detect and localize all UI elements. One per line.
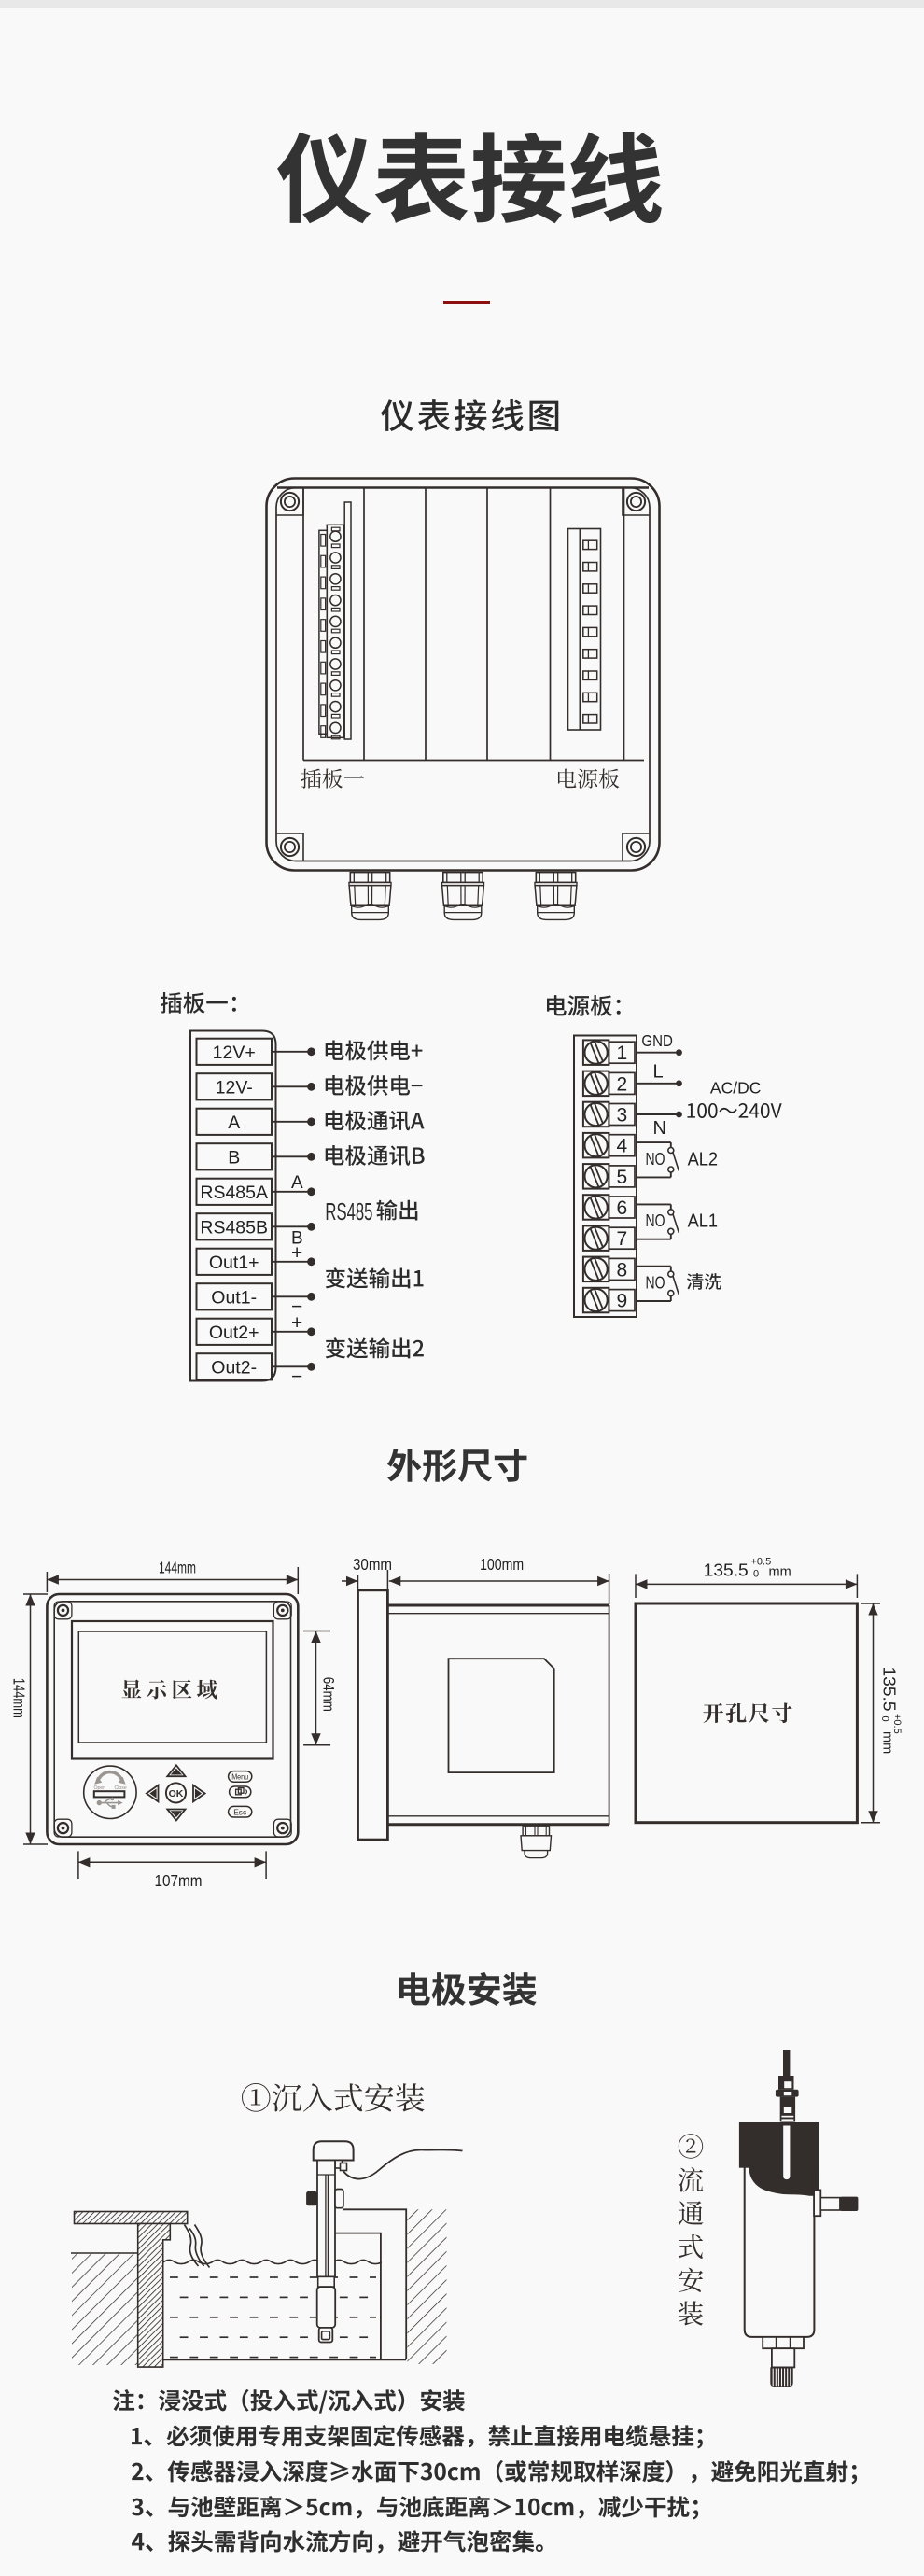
svg-text:+: + bbox=[291, 1242, 302, 1264]
svg-text:A: A bbox=[291, 1173, 303, 1193]
svg-text:Out1+: Out1+ bbox=[209, 1253, 259, 1273]
svg-text:0: 0 bbox=[753, 1569, 759, 1580]
svg-text:5: 5 bbox=[616, 1167, 627, 1188]
svg-text:12V+: 12V+ bbox=[213, 1043, 256, 1063]
svg-text:4: 4 bbox=[616, 1136, 627, 1157]
svg-text:1: 1 bbox=[616, 1043, 627, 1064]
svg-text:135.5: 135.5 bbox=[880, 1667, 899, 1712]
svg-text:+: + bbox=[291, 1312, 302, 1334]
svg-text:AL1: AL1 bbox=[688, 1211, 719, 1232]
svg-text:Out2+: Out2+ bbox=[209, 1323, 259, 1343]
svg-text:RS485: RS485 bbox=[325, 1197, 372, 1225]
svg-text:7: 7 bbox=[616, 1228, 627, 1250]
svg-text:135.5: 135.5 bbox=[704, 1561, 749, 1579]
svg-text:2: 2 bbox=[616, 1073, 627, 1095]
svg-text:6: 6 bbox=[616, 1197, 627, 1219]
svg-text:mm: mm bbox=[769, 1564, 791, 1579]
svg-text:144mm: 144mm bbox=[10, 1678, 29, 1718]
svg-text:L: L bbox=[653, 1061, 664, 1082]
svg-text:8: 8 bbox=[616, 1259, 627, 1281]
svg-text:AC/DC: AC/DC bbox=[710, 1079, 761, 1098]
svg-text:107mm: 107mm bbox=[155, 1871, 203, 1890]
svg-text:NO: NO bbox=[646, 1149, 665, 1169]
svg-text:RS485A: RS485A bbox=[200, 1183, 268, 1203]
svg-text:N: N bbox=[653, 1118, 666, 1139]
svg-text:B: B bbox=[228, 1147, 240, 1168]
svg-text:mm: mm bbox=[880, 1731, 895, 1754]
svg-text:NO: NO bbox=[646, 1211, 665, 1230]
svg-text:Out1-: Out1- bbox=[211, 1287, 257, 1308]
svg-text:12V-: 12V- bbox=[216, 1077, 253, 1098]
svg-text:AL2: AL2 bbox=[688, 1149, 719, 1169]
svg-text:GND: GND bbox=[641, 1031, 673, 1050]
svg-text:RS485B: RS485B bbox=[200, 1217, 268, 1238]
svg-text:Open: Open bbox=[94, 1785, 106, 1791]
svg-text:9: 9 bbox=[616, 1291, 627, 1312]
svg-text:OK: OK bbox=[169, 1788, 184, 1799]
svg-text:3: 3 bbox=[616, 1105, 627, 1127]
svg-text:0: 0 bbox=[879, 1716, 890, 1722]
svg-text:A: A bbox=[228, 1113, 240, 1133]
svg-text:30mm: 30mm bbox=[353, 1555, 392, 1574]
svg-text:100mm: 100mm bbox=[480, 1555, 524, 1574]
svg-text:Esc: Esc bbox=[233, 1807, 246, 1816]
svg-text:144mm: 144mm bbox=[159, 1559, 196, 1577]
svg-text:NO: NO bbox=[646, 1272, 665, 1292]
svg-text:Menu: Menu bbox=[231, 1772, 248, 1782]
svg-text:Out2-: Out2- bbox=[211, 1357, 257, 1378]
svg-text:Close: Close bbox=[115, 1785, 127, 1791]
svg-text:−: − bbox=[291, 1365, 302, 1387]
